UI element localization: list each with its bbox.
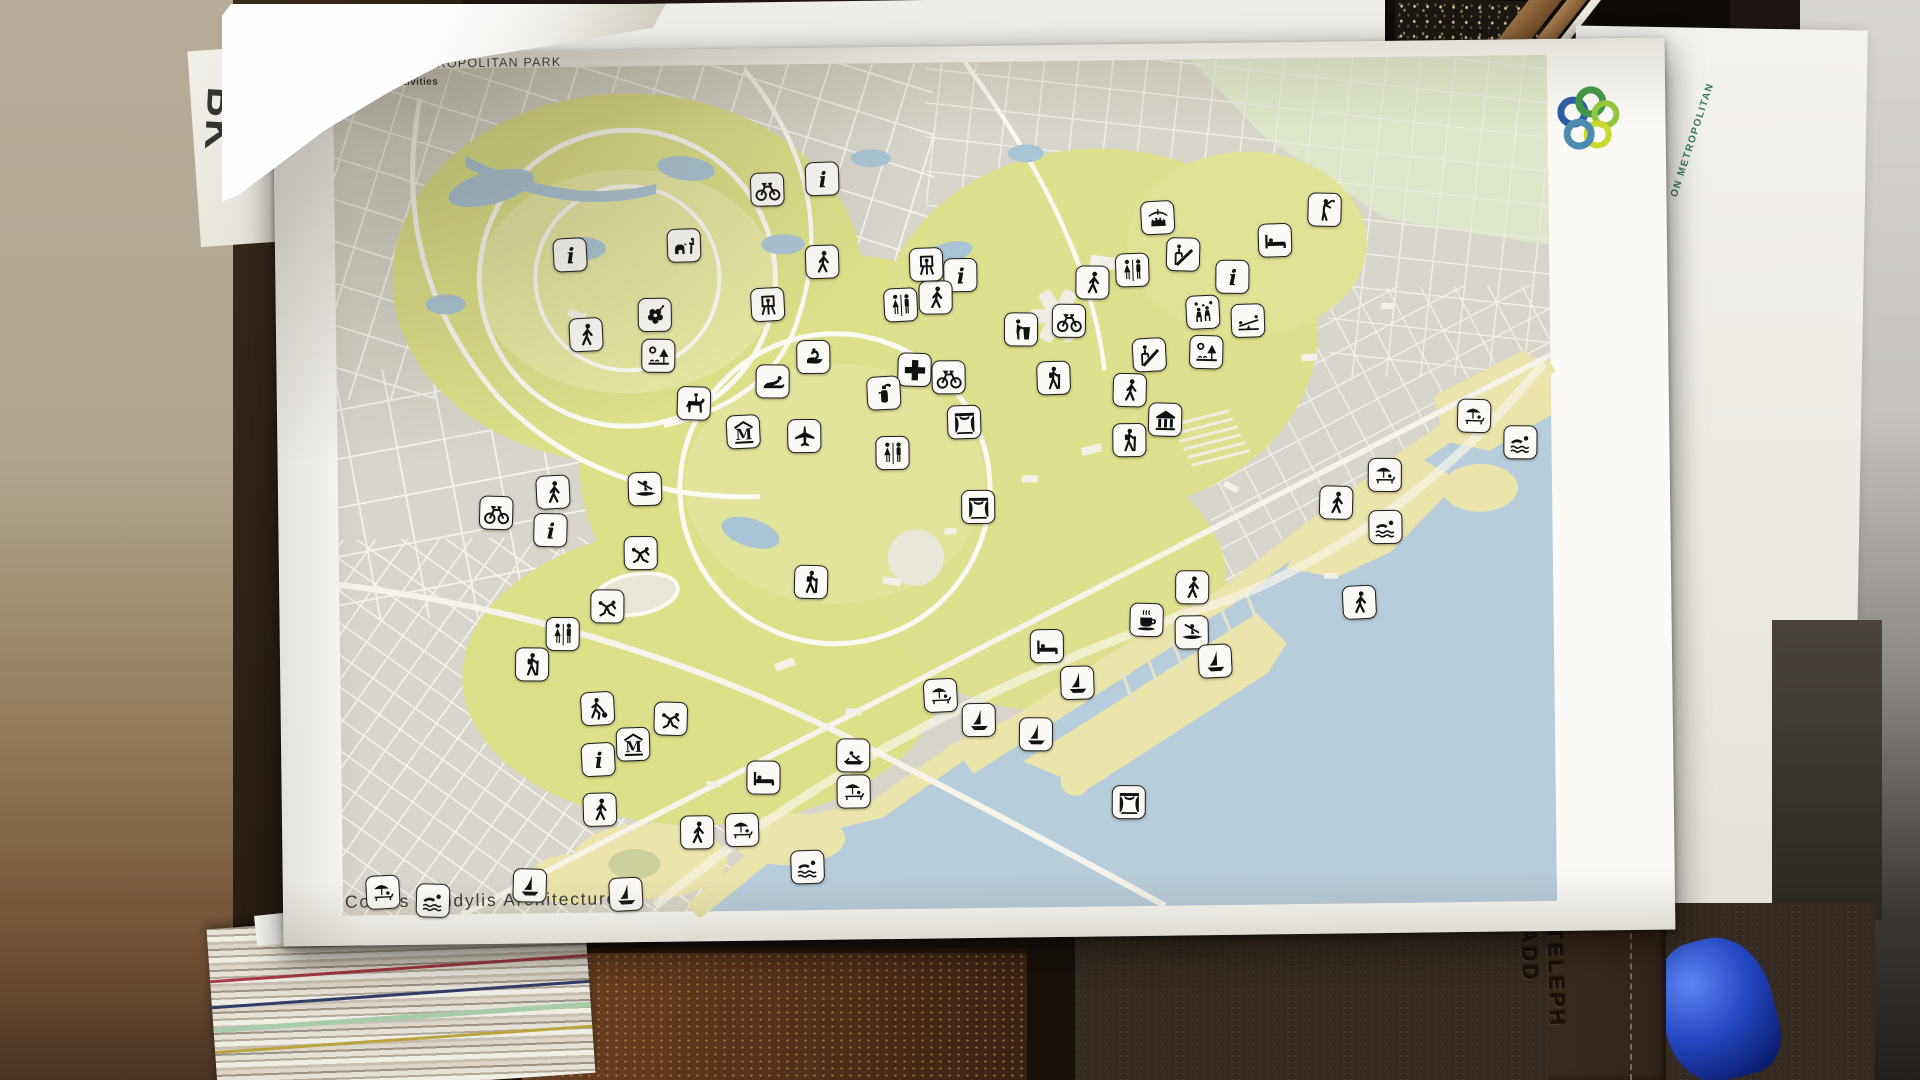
restroom-icon [1115,253,1150,288]
swimmer-icon [1503,425,1537,459]
swimmer-icon [1368,510,1402,544]
airplane-icon [787,419,821,453]
walker-icon [1342,584,1378,620]
walker-icon [1319,485,1354,520]
info-icon [552,237,588,273]
temple-icon [1148,402,1183,437]
stage-icon [947,405,982,440]
info-icon [580,742,616,778]
bed-icon [1257,223,1292,258]
walker-icon [805,244,840,279]
zoo-icon [666,228,701,263]
stage-icon [961,490,995,524]
museum-icon [616,727,651,762]
restroom-icon [546,617,580,651]
printed-park-map-sheet: METROPOLITAN PARK Program Activities Cos… [273,38,1676,947]
walker-icon [680,815,714,849]
sealion-icon [756,364,790,398]
sailboat-icon [962,703,996,737]
walker-icon [918,280,952,314]
hiker-icon [515,647,549,681]
soccer-icon [580,691,616,727]
walker-icon [582,792,617,827]
grappling-icon [624,536,658,570]
bicycle-icon [750,172,785,207]
kayak-icon [627,471,662,506]
magazine-yellow-edge [215,1025,592,1054]
extinguisher-icon [866,375,902,411]
seesaw-icon [1230,303,1265,338]
magazine-green-edge [213,1001,590,1032]
museum-icon [725,414,761,450]
sailboat-icon [512,868,547,903]
bicycle-icon [479,495,514,530]
map-icons-layer [273,38,1676,947]
flower-icon [638,298,672,332]
walker-icon [1175,570,1209,604]
firstaid-icon [897,352,932,387]
embossed-letters [552,1011,1002,1080]
grappling-icon [653,701,688,736]
beach-icon [725,812,760,847]
picnic-icon [1189,335,1224,370]
magazine-navy-edge [212,979,589,1008]
easel-icon [909,247,944,282]
walker-icon [1112,373,1147,408]
beach-icon [923,678,959,714]
info-icon [1215,260,1249,294]
sailboat-icon [1019,717,1053,751]
walker-icon [1075,265,1109,299]
phonebook-line1: TELEPH [1542,927,1569,1029]
lecturer-icon [1004,312,1038,346]
leather-side-panel [1772,620,1882,920]
swimmer-icon [790,850,825,885]
restroom-icon [883,287,919,323]
grappling-icon [590,589,624,623]
beach-icon [365,874,401,910]
phonebook-embossed-text: TELEPH ADD [1514,927,1569,1030]
phonebook-line2: ADD [1516,928,1541,983]
swimmer-icon [416,883,451,918]
horse-icon [676,386,711,421]
bed-icon [746,760,780,794]
beach-icon [1457,398,1492,433]
swan-icon [796,340,830,374]
coffee-icon [1129,602,1164,637]
market-icon [1140,200,1176,236]
slide-icon [1131,337,1167,373]
side-sheet-text: ON METROPOLITAN [1669,81,1716,198]
stage-icon [1112,785,1146,819]
beach-icon [836,774,870,808]
info-icon [805,161,840,196]
hiker-icon [794,565,829,600]
hiker-icon [1112,423,1146,457]
easel-icon [750,287,786,323]
rusted-embossed-box [522,948,1027,1080]
bicycle-icon [1052,304,1086,338]
slide-icon [1166,237,1201,272]
magazine-red-edge [210,954,587,983]
rowing-icon [836,738,870,772]
photo-of-printed-park-map: ON METROPOLITAN BK TELEPH ADD [0,0,1920,1080]
golfer-icon [1307,192,1342,227]
celebration-icon [1185,294,1221,330]
hiker-icon [1036,360,1071,395]
info-icon [533,513,568,548]
picnic-icon [641,339,675,373]
sailboat-icon [608,876,644,912]
beach-icon [1368,458,1402,492]
sailboat-icon [1197,643,1233,679]
bed-icon [1030,629,1064,663]
bicycle-icon [931,360,965,394]
sailboat-icon [1060,665,1095,700]
walker-icon [568,317,604,353]
restroom-icon [875,436,909,470]
walker-icon [535,474,571,510]
